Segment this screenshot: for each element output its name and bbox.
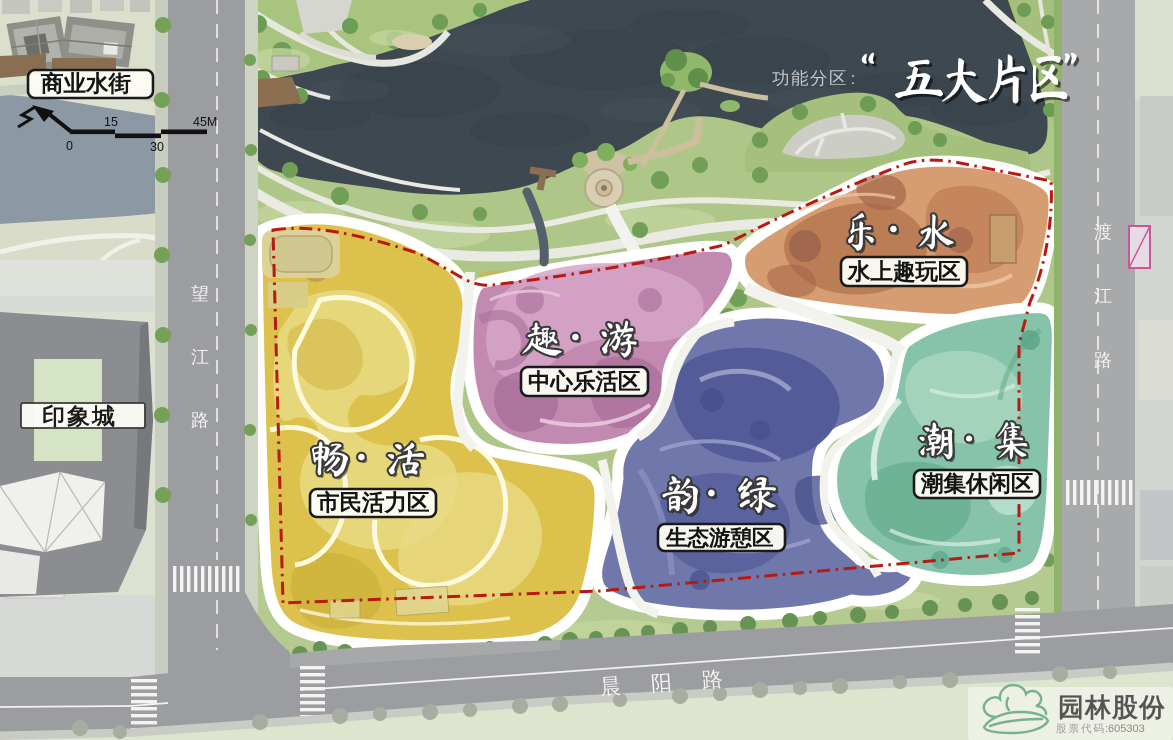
svg-text:0: 0 (66, 139, 73, 153)
svg-text::605303: :605303 (1105, 723, 1145, 735)
svg-text:15: 15 (104, 115, 118, 129)
svg-text::: : (851, 69, 856, 88)
svg-text:30: 30 (150, 140, 164, 154)
svg-text:45M: 45M (193, 115, 217, 129)
